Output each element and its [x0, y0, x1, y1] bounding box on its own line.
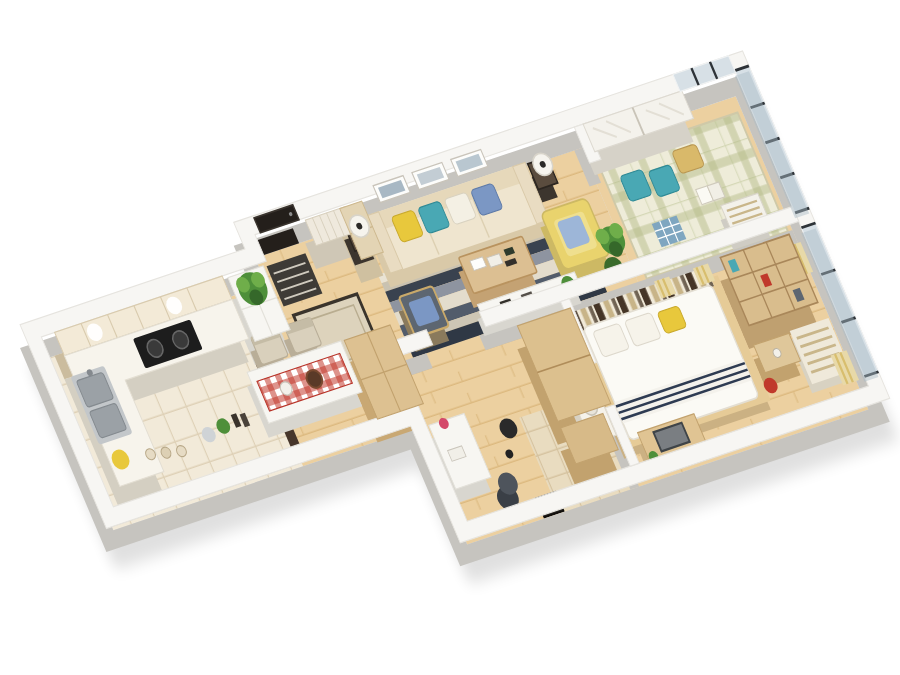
floor-plan-render [0, 0, 900, 675]
apartment-scene [9, 51, 899, 675]
floor-plan-stage [0, 0, 900, 675]
